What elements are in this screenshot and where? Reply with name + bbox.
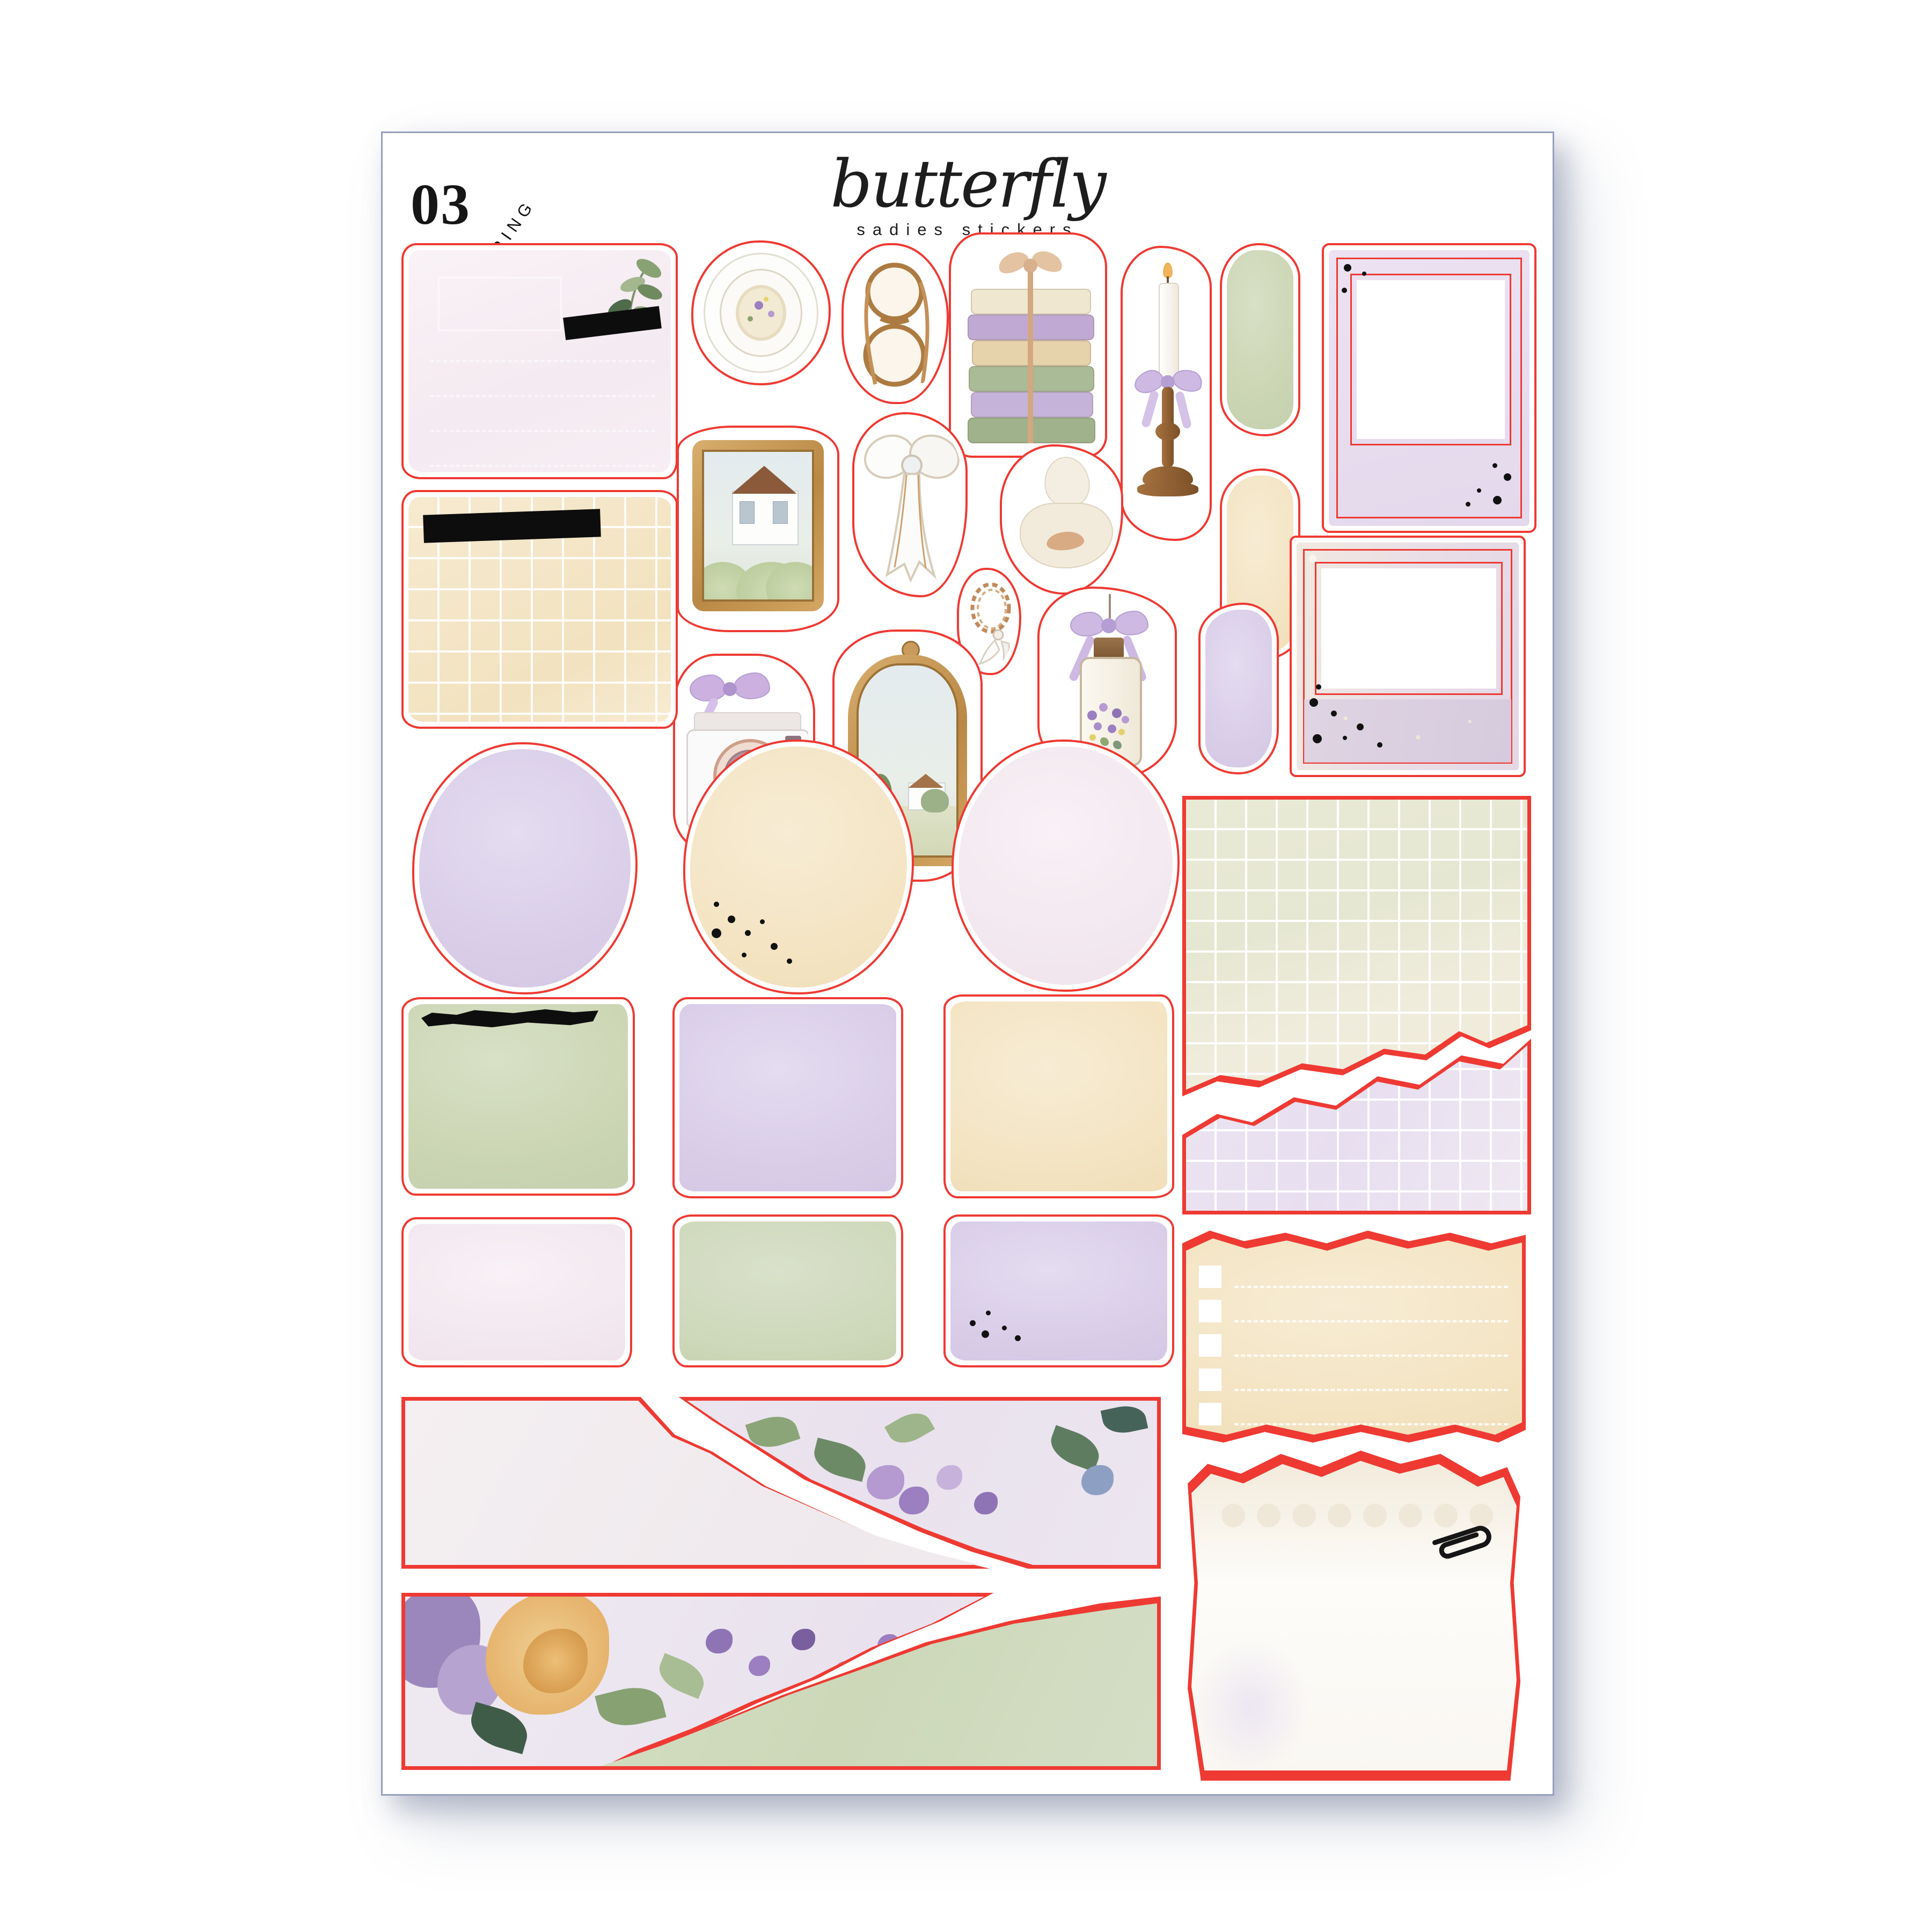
lantern-cap (1094, 638, 1124, 659)
green-rect-art (679, 1221, 896, 1360)
sticker-sheet: 03 LAYERING butterfly sadies stickers (381, 131, 1554, 1796)
checkbox (1199, 1403, 1221, 1425)
dotted-line (1234, 1423, 1508, 1425)
black-brush-stroke (421, 1008, 598, 1030)
latte-foam (736, 285, 786, 341)
sticker-book-stack (949, 232, 1107, 458)
lavender-fleck (755, 301, 763, 310)
sticker-checklist-paper (1182, 1231, 1526, 1443)
sticker-pink-circle (952, 740, 1180, 992)
sticker-folded-glasses (841, 243, 949, 404)
green-swatch-art (1227, 250, 1293, 429)
candle-art (1128, 253, 1205, 534)
pink-circle-art (958, 747, 1173, 985)
punch-hole (1292, 1504, 1316, 1527)
cream-circle-art (690, 747, 907, 987)
dotted-line (1234, 1286, 1508, 1288)
checkbox (1199, 1334, 1221, 1357)
dashed-line (430, 465, 655, 467)
checkbox (1199, 1300, 1221, 1322)
polaroid2-art (1297, 543, 1519, 770)
paper-art (1186, 1009, 1527, 1211)
sticker-cream-square (943, 994, 1174, 1198)
lavender-rect-art (950, 1221, 1167, 1360)
dotted-line (1234, 1320, 1508, 1322)
green-square-art (408, 1004, 628, 1189)
pink-rect-art (408, 1224, 625, 1360)
white-bow-icon (859, 419, 961, 590)
glasses-art (848, 250, 942, 397)
sticker-green-swatch (1220, 243, 1300, 436)
punch-hole (1328, 1504, 1351, 1527)
punch-hole (1221, 1504, 1245, 1527)
dotted-line (1234, 1355, 1508, 1357)
sticker-green-rect (672, 1214, 903, 1367)
sticker-white-bow (852, 412, 968, 597)
lavender-fleck (768, 311, 774, 317)
sticker-pink-journal-note (401, 243, 678, 479)
books-art (956, 239, 1100, 451)
sticker-lavender-swatch (1198, 603, 1279, 774)
photo-window (1357, 280, 1505, 439)
coffee-art (698, 247, 824, 378)
leaf-fleck (748, 316, 753, 321)
lavender-square-art (679, 1004, 896, 1191)
sticker-green-square (401, 997, 635, 1196)
hanger-line (1109, 594, 1111, 618)
sticker-candlestick (1121, 246, 1212, 541)
pink-note-art (408, 250, 671, 472)
white-bow-art (859, 419, 961, 590)
candlestick-foot (1137, 482, 1198, 496)
punch-hole (1363, 1504, 1387, 1527)
sticker-torn-strip-1 (401, 1397, 1161, 1569)
wick (1167, 276, 1169, 283)
punch-hole (1399, 1504, 1422, 1527)
sticker-coffee-cup (691, 240, 831, 385)
photo-window (1321, 568, 1496, 689)
note-label-box (438, 277, 562, 331)
lavender-circle-art (419, 749, 631, 987)
sticker-lavender-circle (412, 742, 638, 994)
candlestick-knob (1155, 422, 1180, 441)
candle-body (1159, 283, 1179, 382)
glasses-icon (848, 250, 942, 397)
lace-band (1304, 699, 1511, 763)
bow-tail (1141, 390, 1160, 428)
note-paper-art (1191, 1454, 1517, 1777)
lantern-bow (1070, 612, 1104, 636)
brand-name: butterfly (383, 151, 1553, 217)
sticker-pink-rect (401, 1217, 632, 1367)
brand-logo: butterfly sadies stickers (383, 151, 1553, 239)
camera-bow (690, 675, 726, 701)
chamomile-fleck (764, 297, 769, 302)
sticker-polaroid-portrait (1322, 243, 1536, 533)
sticker-cream-circle (683, 740, 914, 994)
tan-note-art (408, 497, 671, 722)
book-ribbon (1028, 272, 1033, 443)
checkbox (1199, 1265, 1221, 1288)
cream-square-art (950, 1001, 1167, 1191)
book-bow-knot (1023, 259, 1037, 273)
dotted-line (1234, 1389, 1508, 1391)
bow-tail (1175, 391, 1192, 429)
camera-bow-knot (723, 682, 737, 696)
checklist-art (1186, 1234, 1522, 1439)
lavender-swatch-art (1205, 610, 1272, 767)
sticker-plaster-bust (1000, 444, 1123, 595)
punch-hole (1257, 1504, 1280, 1527)
dashed-line (430, 430, 655, 432)
dashed-line (430, 360, 655, 362)
sticker-gold-frame-house (677, 426, 839, 632)
sticker-lavender-grid-paper (1182, 1005, 1531, 1214)
black-washi-tape (423, 509, 601, 543)
polaroid1-art (1329, 250, 1529, 526)
sticker-torn-strip-2 (401, 1593, 1161, 1770)
lavender-blotch (1191, 1637, 1309, 1777)
frame1-art (684, 433, 832, 625)
frame-scene (702, 450, 814, 602)
sticker-lavender-rect (943, 1214, 1174, 1367)
lantern-bow-knot (1101, 618, 1116, 633)
gold-frame (692, 440, 824, 611)
hedge (921, 789, 949, 813)
window (740, 501, 755, 524)
checkbox (1199, 1368, 1221, 1391)
sticker-polaroid-landscape (1290, 536, 1526, 777)
window (773, 501, 788, 524)
camera-bow (734, 672, 770, 699)
sticker-tan-grid-note (401, 490, 678, 729)
sticker-note-paper (1188, 1451, 1520, 1781)
dashed-line (430, 395, 655, 397)
bust-art (1007, 451, 1116, 588)
sticker-lavender-square (672, 997, 903, 1198)
lantern-bow (1114, 611, 1148, 635)
